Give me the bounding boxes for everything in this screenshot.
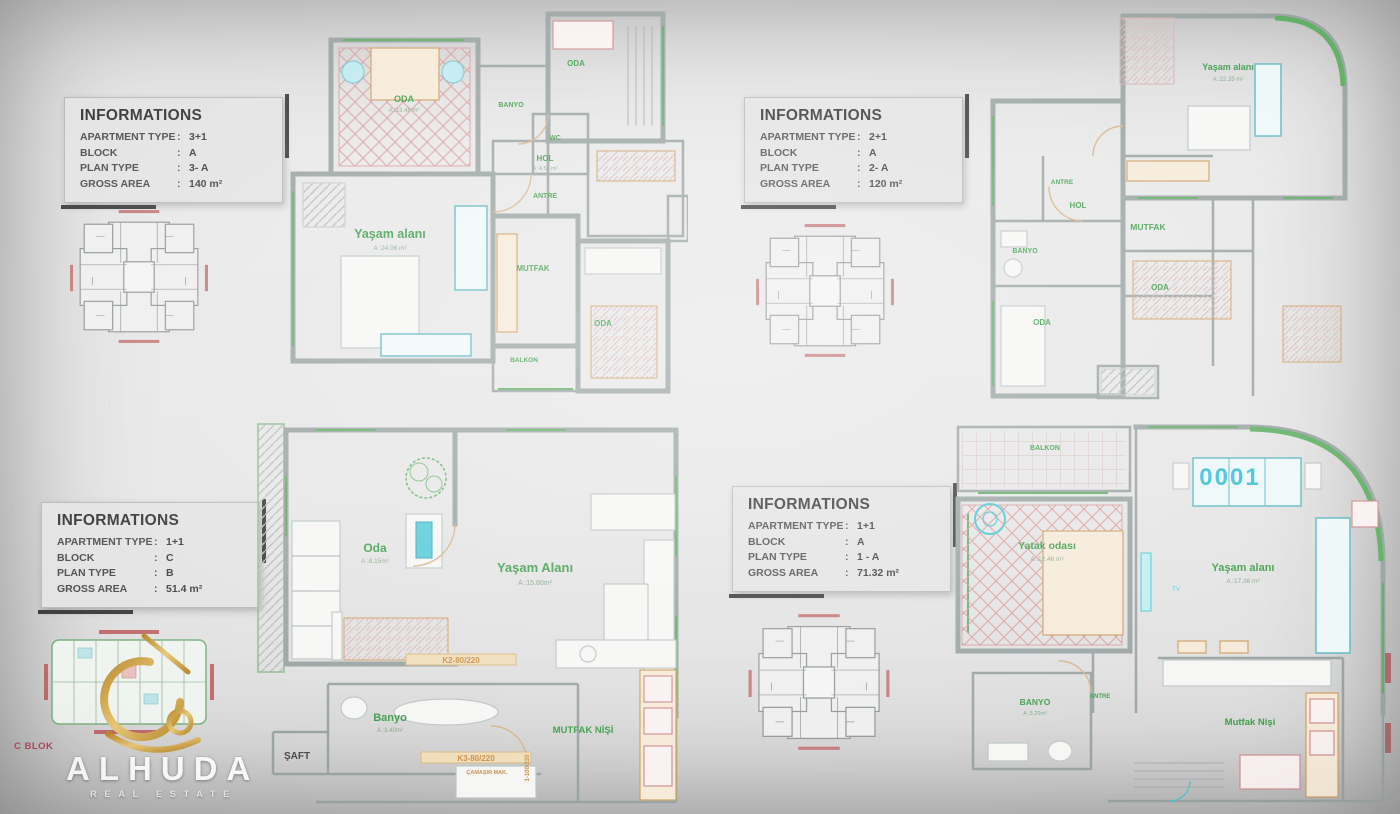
- row-colon: :: [177, 146, 189, 162]
- room-label: BANYO: [498, 102, 524, 109]
- info-row: PLAN TYPE:B: [57, 566, 249, 582]
- row-value: 1+1: [857, 519, 940, 535]
- row-value: B: [166, 566, 249, 582]
- room-area: A :4.53 m²: [532, 166, 557, 172]
- floor-plan-2a: Yaşam alanı A :22.35 m² ANTRE HOL MUTFAK…: [983, 6, 1363, 406]
- info-row: APARTMENT TYPE:3+1: [80, 130, 272, 146]
- row-value: A: [857, 535, 940, 551]
- row-value: A: [869, 146, 952, 162]
- room-label: WC: [549, 135, 561, 142]
- row-label: PLAN TYPE: [760, 161, 857, 177]
- row-colon: :: [845, 550, 857, 566]
- info-box-3plus1: INFORMATIONS APARTMENT TYPE:3+1 BLOCK:A …: [64, 97, 283, 203]
- row-colon: :: [154, 566, 166, 582]
- room-label: BALKON: [1030, 445, 1060, 452]
- row-label: GROSS AREA: [760, 177, 857, 193]
- info-row: APARTMENT TYPE:1+1: [748, 519, 940, 535]
- appliance-label: ÇAMAŞIR MAK.: [466, 770, 508, 776]
- row-colon: :: [857, 177, 869, 193]
- floorplan-brochure: INFORMATIONS APARTMENT TYPE:3+1 BLOCK:A …: [0, 0, 1400, 814]
- room-label: ANTRE: [1051, 179, 1074, 186]
- row-value: 1 - A: [857, 550, 940, 566]
- row-value: C: [166, 551, 249, 567]
- info-row: GROSS AREA:51.4 m²: [57, 582, 249, 598]
- row-colon: :: [177, 177, 189, 193]
- alhuda-logo-tagline: REAL ESTATE: [90, 789, 237, 800]
- room-label: Yaşam alanı: [1212, 562, 1275, 574]
- room-area: A :24.06 m²: [373, 245, 407, 252]
- room-label: MUTFAK: [1130, 222, 1166, 232]
- row-value: 2+1: [869, 130, 952, 146]
- room-label: BANYO: [1012, 248, 1038, 255]
- tv-label: TV: [1172, 587, 1180, 593]
- room-label: Mutfak Nişi: [1225, 717, 1276, 728]
- room-label: HOL: [537, 154, 554, 163]
- room-area: A :17.36 m²: [1226, 578, 1260, 585]
- room-label: MUTFAK: [516, 264, 550, 273]
- info-row: PLAN TYPE:3- A: [80, 161, 272, 177]
- furniture: [292, 458, 676, 800]
- alhuda-logo-text: ALHUDA: [66, 750, 259, 788]
- floor-plan-3a: ODA A :13.48 m² BANYO WC ODA HOL A :4.53…: [283, 6, 688, 400]
- key-plan-block-a1: [60, 206, 218, 348]
- room-area: A :12.46 m²: [1030, 556, 1064, 563]
- room-label: Yaşam alanı: [1202, 62, 1254, 72]
- info-row: GROSS AREA:71.32 m²: [748, 566, 940, 582]
- room-area: A :3.40m²: [377, 728, 403, 734]
- row-label: GROSS AREA: [57, 582, 154, 598]
- row-label: PLAN TYPE: [748, 550, 845, 566]
- room-label: Yaşam Alanı: [497, 560, 573, 575]
- info-row: PLAN TYPE:1 - A: [748, 550, 940, 566]
- door-tag: K2-80/220: [442, 656, 480, 665]
- row-label: PLAN TYPE: [80, 161, 177, 177]
- info-box-2plus1: INFORMATIONS APARTMENT TYPE:2+1 BLOCK:A …: [744, 97, 963, 203]
- row-value: 140 m²: [189, 177, 272, 193]
- row-value: 51.4 m²: [166, 582, 249, 598]
- row-colon: :: [845, 519, 857, 535]
- row-colon: :: [154, 551, 166, 567]
- floor-plan-b: Oda A :8.15m² Yaşam Alanı A :15.80m² Ban…: [256, 416, 684, 808]
- door-tag: 1-100/220: [525, 754, 531, 782]
- row-label: GROSS AREA: [748, 566, 845, 582]
- row-colon: :: [845, 535, 857, 551]
- info-row: GROSS AREA:120 m²: [760, 177, 952, 193]
- unit-number: 0001: [1199, 464, 1260, 491]
- room-label: ODA: [1033, 318, 1051, 327]
- row-colon: :: [857, 161, 869, 177]
- row-colon: :: [177, 161, 189, 177]
- room-label: ANTRE: [533, 193, 557, 200]
- row-colon: :: [845, 566, 857, 582]
- row-colon: :: [154, 582, 166, 598]
- row-label: BLOCK: [57, 551, 154, 567]
- info-row: GROSS AREA:140 m²: [80, 177, 272, 193]
- room-label: Yatak odası: [1018, 540, 1076, 552]
- row-label: APARTMENT TYPE: [57, 535, 154, 551]
- info-title: INFORMATIONS: [760, 107, 952, 125]
- room-label: BALKON: [510, 357, 538, 364]
- row-colon: :: [154, 535, 166, 551]
- info-box-1plus1-a: INFORMATIONS APARTMENT TYPE:1+1 BLOCK:A …: [732, 486, 951, 592]
- row-label: APARTMENT TYPE: [760, 130, 857, 146]
- row-label: APARTMENT TYPE: [80, 130, 177, 146]
- room-label: Banyo: [373, 712, 407, 724]
- room-area: A :3.20m²: [1023, 711, 1047, 717]
- row-value: 120 m²: [869, 177, 952, 193]
- room-label: ODA: [394, 94, 415, 104]
- room-area: A :15.80m²: [518, 580, 553, 587]
- room-label: ŞAFT: [284, 751, 310, 762]
- row-value: 2- A: [869, 161, 952, 177]
- room-area: A :8.15m²: [361, 558, 390, 565]
- row-value: 3- A: [189, 161, 272, 177]
- row-value: 3+1: [189, 130, 272, 146]
- room-label: MUTFAK NİŞİ: [553, 725, 614, 736]
- room-label: BANYO: [1020, 697, 1051, 707]
- room-label: HOL: [1070, 201, 1087, 210]
- room-area: A :22.35 m²: [1213, 77, 1244, 83]
- floor-plan-1a: BALKON Yatak odası A :12.46 m² 0001 Yaşa…: [948, 413, 1395, 810]
- info-row: BLOCK:A: [80, 146, 272, 162]
- room-area: A :13.48 m²: [389, 108, 420, 114]
- info-row: APARTMENT TYPE:2+1: [760, 130, 952, 146]
- info-row: PLAN TYPE:2- A: [760, 161, 952, 177]
- room-label: ODA: [567, 59, 585, 68]
- row-colon: :: [857, 130, 869, 146]
- row-value: 1+1: [166, 535, 249, 551]
- row-label: BLOCK: [80, 146, 177, 162]
- door-tag: K3-80/220: [457, 754, 495, 763]
- furniture: [1001, 18, 1341, 395]
- info-title: INFORMATIONS: [57, 512, 249, 530]
- info-box-1plus1-c: INFORMATIONS APARTMENT TYPE:1+1 BLOCK:C …: [41, 502, 260, 608]
- row-value: A: [189, 146, 272, 162]
- info-row: BLOCK:A: [748, 535, 940, 551]
- row-label: BLOCK: [760, 146, 857, 162]
- room-label: ODA: [594, 319, 612, 328]
- info-title: INFORMATIONS: [80, 107, 272, 125]
- info-row: APARTMENT TYPE:1+1: [57, 535, 249, 551]
- row-label: BLOCK: [748, 535, 845, 551]
- room-label: Oda: [363, 541, 387, 555]
- row-label: APARTMENT TYPE: [748, 519, 845, 535]
- row-label: GROSS AREA: [80, 177, 177, 193]
- alhuda-logo-emblem: [92, 610, 210, 768]
- room-label: ODA: [1151, 283, 1169, 292]
- row-colon: :: [857, 146, 869, 162]
- info-row: BLOCK:C: [57, 551, 249, 567]
- room-label: Yaşam alanı: [354, 227, 426, 241]
- info-row: BLOCK:A: [760, 146, 952, 162]
- furniture: [962, 431, 1391, 801]
- row-label: PLAN TYPE: [57, 566, 154, 582]
- key-plan-block-a2: [746, 220, 904, 362]
- key-plan-block-a3: [740, 610, 898, 755]
- c-block-label: C BLOK: [14, 741, 53, 752]
- row-colon: :: [177, 130, 189, 146]
- furniture: [303, 21, 675, 378]
- row-value: 71.32 m²: [857, 566, 940, 582]
- room-label: ANTRE: [1090, 694, 1111, 700]
- info-title: INFORMATIONS: [748, 496, 940, 514]
